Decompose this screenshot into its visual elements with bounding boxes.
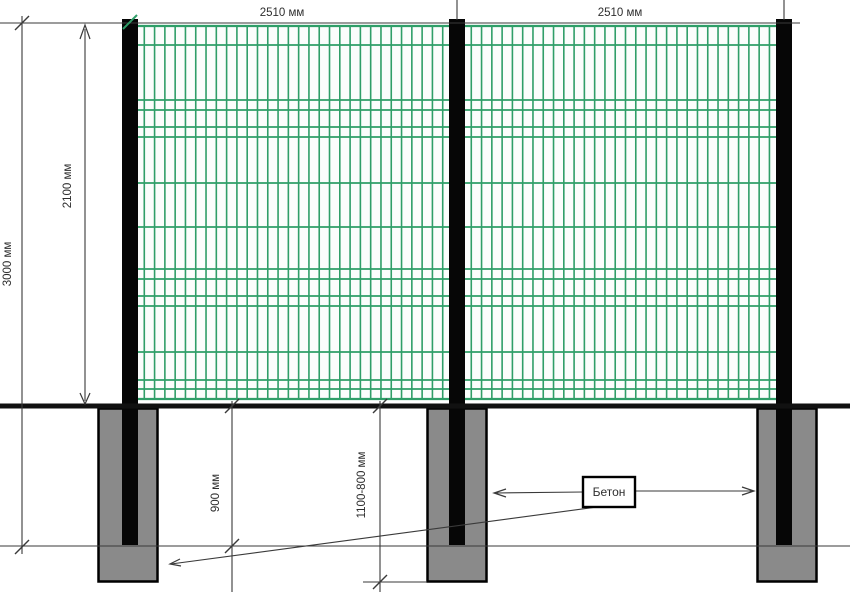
mesh-panel-background bbox=[134, 26, 453, 399]
fence-construction-diagram: 2510 мм 2510 мм 3000 мм 2100 мм 900 мм 1… bbox=[0, 0, 850, 592]
concrete-label: Бетон bbox=[593, 485, 626, 499]
post-total-height-label: 3000 мм bbox=[2, 242, 14, 287]
fence-post-right bbox=[776, 19, 792, 545]
panel-height-label: 2100 мм bbox=[62, 164, 74, 209]
post-embed-depth-label: 900 мм bbox=[210, 474, 222, 512]
fence-post-middle bbox=[449, 19, 465, 545]
diagram-canvas: 2510 мм 2510 мм 3000 мм 2100 мм 900 мм 1… bbox=[0, 0, 850, 592]
fence-post-left bbox=[122, 19, 138, 545]
panel-width-left-label: 2510 мм bbox=[260, 7, 305, 19]
foundation-depth-label: 1100-800 мм bbox=[356, 452, 368, 519]
panel-width-right-label: 2510 мм bbox=[598, 7, 643, 19]
